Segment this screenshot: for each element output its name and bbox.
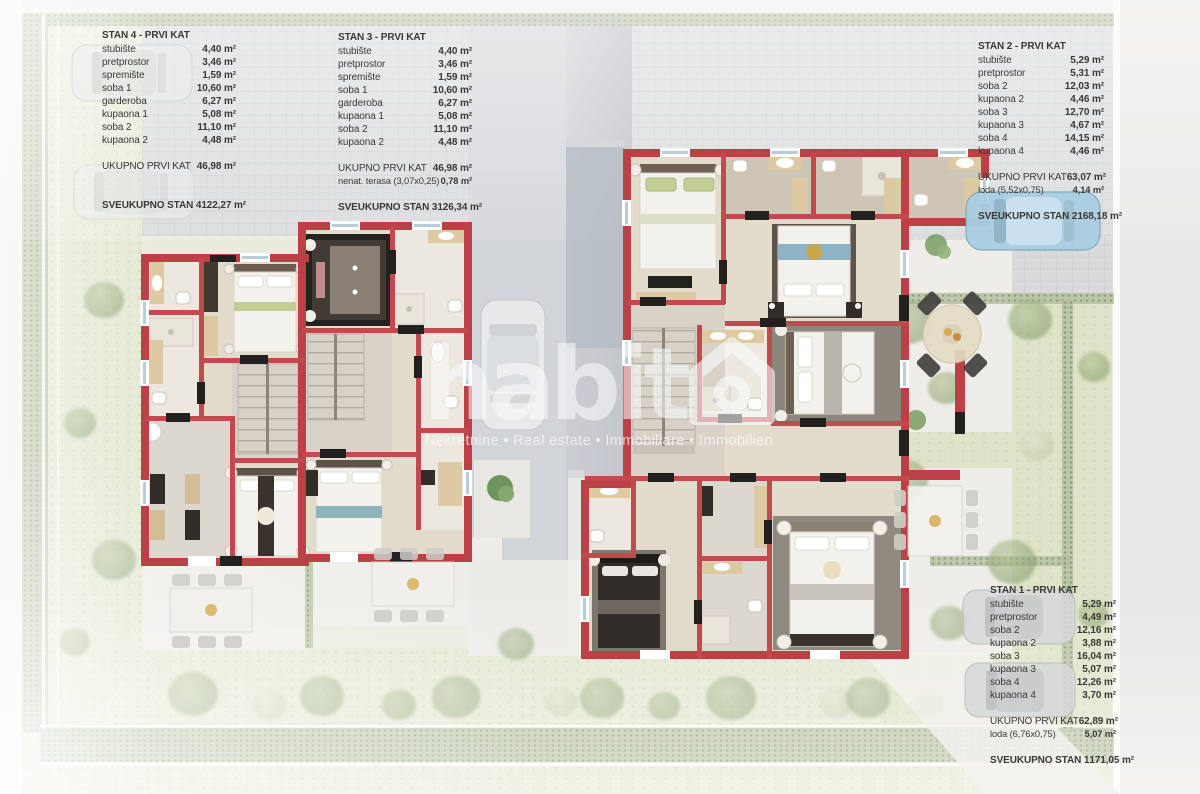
room-label: kupaona 4 bbox=[978, 145, 1024, 158]
table-row: spremište1,59 m² bbox=[338, 71, 472, 84]
table-row: spremište1,59 m² bbox=[102, 69, 236, 82]
room-label: garderoba bbox=[102, 95, 147, 108]
room-label: kupaona 1 bbox=[338, 110, 384, 123]
room-label: stubište bbox=[102, 43, 136, 56]
room-label: pretprostor bbox=[978, 67, 1025, 80]
area-value: 4,14 m² bbox=[1073, 184, 1104, 197]
room-label: soba 3 bbox=[978, 106, 1007, 119]
room-label: SVEUKUPNO STAN 1 bbox=[990, 754, 1089, 767]
subtotal-row: UKUPNO PRVI KAT63,07 m² bbox=[978, 171, 1104, 184]
area-value: 12,16 m² bbox=[1077, 624, 1116, 637]
bed-dark bbox=[588, 550, 670, 652]
room-label: stubište bbox=[978, 54, 1012, 67]
corridor-cabinet bbox=[306, 470, 318, 496]
area-value: 11,10 m² bbox=[197, 121, 236, 134]
area-value: 5,08 m² bbox=[202, 108, 236, 121]
table-row: pretprostor3,46 m² bbox=[102, 56, 236, 69]
room-label: stubište bbox=[990, 598, 1024, 611]
table-row: stubište4,40 m² bbox=[338, 45, 472, 58]
table-row: soba 211,10 m² bbox=[338, 123, 472, 136]
staircase bbox=[238, 364, 298, 454]
area-value: 10,60 m² bbox=[433, 84, 472, 97]
grand-total-row: SVEUKUPNO STAN 1171,05 m² bbox=[990, 754, 1116, 767]
wardrobe bbox=[202, 260, 218, 356]
car-top-view bbox=[481, 300, 545, 430]
table-row: garderoba6,27 m² bbox=[338, 97, 472, 110]
area-table-stan2: STAN 2 - PRVI KATstubište5,29 m²pretpros… bbox=[978, 40, 1104, 223]
room-label: UKUPNO PRVI KAT bbox=[990, 715, 1079, 728]
area-value: 3,46 m² bbox=[438, 58, 472, 71]
table-row: kupaona 15,08 m² bbox=[102, 108, 236, 121]
area-table-stan3: STAN 3 - PRVI KATstubište4,40 m²pretpros… bbox=[338, 31, 472, 214]
table-row: kupaona 34,67 m² bbox=[978, 119, 1104, 132]
room-label: soba 4 bbox=[978, 132, 1007, 145]
potted-plant bbox=[487, 475, 514, 502]
round-dining-set bbox=[916, 290, 989, 378]
table-title: STAN 4 - PRVI KAT bbox=[102, 29, 236, 43]
table-row: soba 212,03 m² bbox=[978, 80, 1104, 93]
table-row: soba 110,60 m² bbox=[102, 82, 236, 95]
area-value: 5,31 m² bbox=[1070, 67, 1104, 80]
table-row: kupaona 23,88 m² bbox=[990, 637, 1116, 650]
area-value: 168,18 m² bbox=[1077, 210, 1122, 223]
area-value: 171,05 m² bbox=[1089, 754, 1134, 767]
table-row: stubište5,29 m² bbox=[978, 54, 1104, 67]
site-plan-rendering: habit Nekretnine • Real estate • Immobil… bbox=[0, 0, 1200, 794]
area-value: 14,15 m² bbox=[1065, 132, 1104, 145]
room-label: UKUPNO PRVI KAT bbox=[978, 171, 1067, 184]
area-value: 16,04 m² bbox=[1077, 650, 1116, 663]
area-value: 1,59 m² bbox=[438, 71, 472, 84]
table-row: pretprostor4,49 m² bbox=[990, 611, 1116, 624]
room-label: kupaona 2 bbox=[978, 93, 1024, 106]
area-table-stan4: STAN 4 - PRVI KATstubište4,40 m²pretpros… bbox=[102, 29, 236, 212]
area-value: 10,60 m² bbox=[197, 82, 236, 95]
room-label: soba 2 bbox=[978, 80, 1007, 93]
room-label: loda (6,76x0,75) bbox=[990, 728, 1056, 741]
area-value: 4,48 m² bbox=[202, 134, 236, 147]
table-row: garderoba6,27 m² bbox=[102, 95, 236, 108]
bed-dark bbox=[304, 234, 392, 326]
area-value: 3,70 m² bbox=[1082, 689, 1116, 702]
room-label: SVEUKUPNO STAN 4 bbox=[102, 199, 201, 212]
table-row: soba 316,04 m² bbox=[990, 650, 1116, 663]
room-label: soba 3 bbox=[990, 650, 1019, 663]
building-right bbox=[580, 148, 989, 659]
room-label: garderoba bbox=[338, 97, 383, 110]
area-value: 12,70 m² bbox=[1065, 106, 1104, 119]
table-row: stubište5,29 m² bbox=[990, 598, 1116, 611]
area-value: 46,98 m² bbox=[197, 160, 236, 173]
room-label: loda (5,52x0,75) bbox=[978, 184, 1044, 197]
table-row: kupaona 24,48 m² bbox=[102, 134, 236, 147]
area-value: 122,27 m² bbox=[201, 199, 246, 212]
area-value: 4,40 m² bbox=[202, 43, 236, 56]
table-row: kupaona 35,07 m² bbox=[990, 663, 1116, 676]
table-title: STAN 2 - PRVI KAT bbox=[978, 40, 1104, 54]
table-row: kupaona 43,70 m² bbox=[990, 689, 1116, 702]
area-table-stan1: STAN 1 - PRVI KATstubište5,29 m²pretpros… bbox=[990, 584, 1116, 767]
area-value: 4,46 m² bbox=[1070, 145, 1104, 158]
area-value: 4,46 m² bbox=[1070, 93, 1104, 106]
area-value: 1,59 m² bbox=[202, 69, 236, 82]
room-label: kupaona 2 bbox=[338, 136, 384, 149]
room-label: SVEUKUPNO STAN 2 bbox=[978, 210, 1077, 223]
room-label: kupaona 3 bbox=[990, 663, 1036, 676]
room-label: SVEUKUPNO STAN 3 bbox=[338, 201, 437, 214]
room-label: pretprostor bbox=[990, 611, 1037, 624]
room-label: soba 1 bbox=[102, 82, 131, 95]
table-title: STAN 1 - PRVI KAT bbox=[990, 584, 1116, 598]
room-label: spremište bbox=[338, 71, 380, 84]
table-title: STAN 3 - PRVI KAT bbox=[338, 31, 472, 45]
room-label: soba 2 bbox=[102, 121, 131, 134]
building-left bbox=[140, 221, 472, 566]
table-row: pretprostor3,46 m² bbox=[338, 58, 472, 71]
area-value: 4,40 m² bbox=[438, 45, 472, 58]
area-value: 4,49 m² bbox=[1082, 611, 1116, 624]
room-label: pretprostor bbox=[102, 56, 149, 69]
bed-white-gray bbox=[775, 324, 874, 422]
table-row: soba 211,10 m² bbox=[102, 121, 236, 134]
subtotal-row: loda (5,52x0,75)4,14 m² bbox=[978, 184, 1104, 197]
area-value: 5,29 m² bbox=[1070, 54, 1104, 67]
table-row: soba 212,16 m² bbox=[990, 624, 1116, 637]
table-row: stubište4,40 m² bbox=[102, 43, 236, 56]
bed-blue-band bbox=[768, 224, 862, 318]
grand-total-row: SVEUKUPNO STAN 3126,34 m² bbox=[338, 201, 472, 214]
table-row: kupaona 24,46 m² bbox=[978, 93, 1104, 106]
bed-white-green bbox=[224, 264, 306, 354]
room-label: pretprostor bbox=[338, 58, 385, 71]
subtotal-row: UKUPNO PRVI KAT62,89 m² bbox=[990, 715, 1116, 728]
subtotal-row: loda (6,76x0,75)5,07 m² bbox=[990, 728, 1116, 741]
area-value: 12,26 m² bbox=[1077, 676, 1116, 689]
area-value: 12,03 m² bbox=[1065, 80, 1104, 93]
area-value: 46,98 m² bbox=[433, 162, 472, 175]
area-value: 4,67 m² bbox=[1070, 119, 1104, 132]
area-value: 0,78 m² bbox=[441, 175, 472, 188]
room-label: soba 2 bbox=[338, 123, 367, 136]
table-row: pretprostor5,31 m² bbox=[978, 67, 1104, 80]
area-value: 6,27 m² bbox=[438, 97, 472, 110]
table-row: kupaona 24,48 m² bbox=[338, 136, 472, 149]
subtotal-row: UKUPNO PRVI KAT46,98 m² bbox=[102, 160, 236, 173]
area-value: 63,07 m² bbox=[1067, 171, 1106, 184]
area-value: 3,46 m² bbox=[202, 56, 236, 69]
area-value: 6,27 m² bbox=[202, 95, 236, 108]
room-label: kupaona 2 bbox=[102, 134, 148, 147]
room-label: spremište bbox=[102, 69, 144, 82]
area-value: 5,07 m² bbox=[1085, 728, 1116, 741]
bed-large-white bbox=[773, 516, 901, 650]
room-label: UKUPNO PRVI KAT bbox=[338, 162, 427, 175]
area-value: 5,29 m² bbox=[1082, 598, 1116, 611]
room-label: kupaona 1 bbox=[102, 108, 148, 121]
dining-set bbox=[170, 574, 252, 648]
room-label: nenat. terasa (3,07x0,25) bbox=[338, 175, 439, 188]
area-value: 62,89 m² bbox=[1079, 715, 1118, 728]
table-row: soba 110,60 m² bbox=[338, 84, 472, 97]
area-value: 11,10 m² bbox=[433, 123, 472, 136]
area-value: 126,34 m² bbox=[437, 201, 482, 214]
subtotal-row: nenat. terasa (3,07x0,25)0,78 m² bbox=[338, 175, 472, 188]
dining-set bbox=[372, 548, 454, 622]
bed-white-dark-runner bbox=[225, 467, 309, 557]
subtotal-row: UKUPNO PRVI KAT46,98 m² bbox=[338, 162, 472, 175]
grand-total-row: SVEUKUPNO STAN 2168,18 m² bbox=[978, 210, 1104, 223]
table-row: kupaona 15,08 m² bbox=[338, 110, 472, 123]
room-label: stubište bbox=[338, 45, 372, 58]
room-label: kupaona 3 bbox=[978, 119, 1024, 132]
bed-white-teal bbox=[306, 460, 392, 552]
staircase bbox=[633, 328, 695, 454]
table-row: soba 412,26 m² bbox=[990, 676, 1116, 689]
room-label: soba 2 bbox=[990, 624, 1019, 637]
room-label: kupaona 4 bbox=[990, 689, 1036, 702]
room-label: kupaona 2 bbox=[990, 637, 1036, 650]
room-label: soba 4 bbox=[990, 676, 1019, 689]
room-label: UKUPNO PRVI KAT bbox=[102, 160, 191, 173]
area-value: 4,48 m² bbox=[438, 136, 472, 149]
table-row: soba 312,70 m² bbox=[978, 106, 1104, 119]
area-value: 5,07 m² bbox=[1082, 663, 1116, 676]
grand-total-row: SVEUKUPNO STAN 4122,27 m² bbox=[102, 199, 236, 212]
staircase bbox=[308, 334, 364, 420]
table-row: soba 414,15 m² bbox=[978, 132, 1104, 145]
area-value: 5,08 m² bbox=[438, 110, 472, 123]
room-label: soba 1 bbox=[338, 84, 367, 97]
area-value: 3,88 m² bbox=[1082, 637, 1116, 650]
table-row: kupaona 44,46 m² bbox=[978, 145, 1104, 158]
garage-roof bbox=[566, 140, 624, 478]
